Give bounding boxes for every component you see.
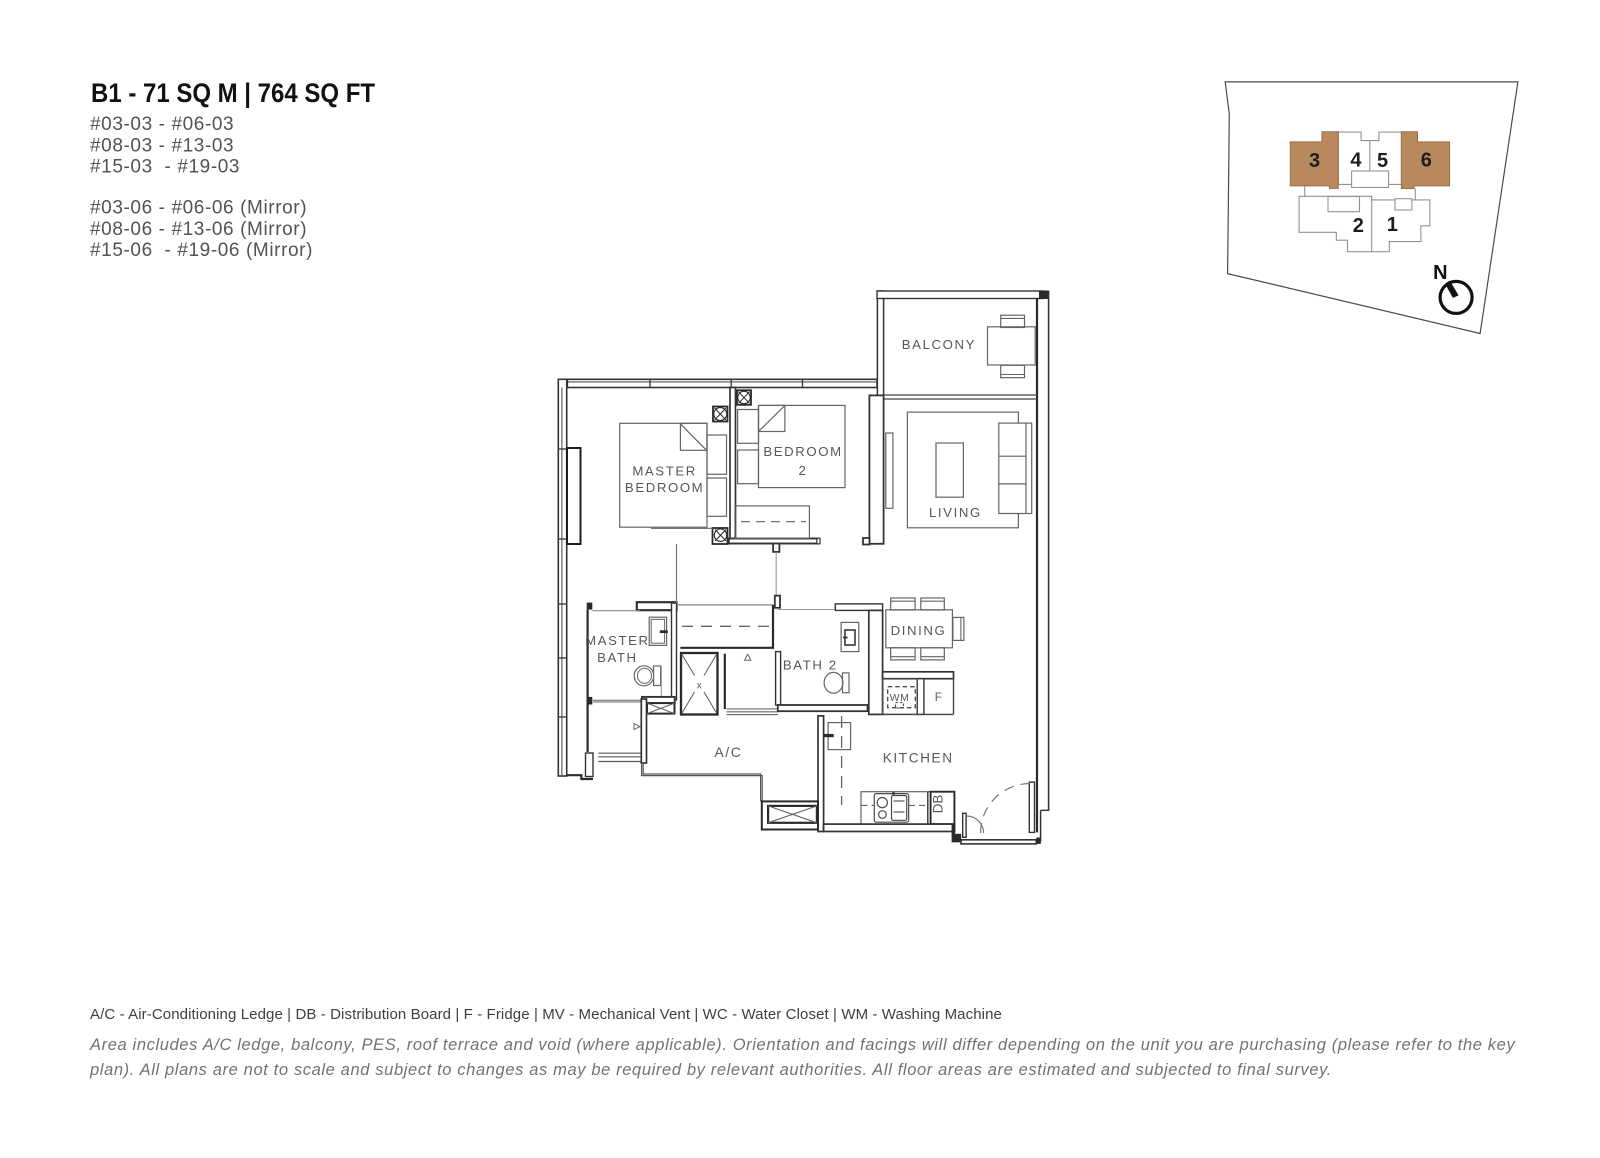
- svg-text:6: 6: [1421, 150, 1432, 172]
- svg-text:Area includes A/C ledge, balco: Area includes A/C ledge, balcony, PES, r…: [89, 1036, 1516, 1054]
- svg-text:BEDROOM: BEDROOM: [763, 444, 842, 459]
- svg-text:#08-06 - #13-06 (Mirror): #08-06 - #13-06 (Mirror): [90, 219, 307, 240]
- svg-text:WM: WM: [890, 692, 910, 704]
- svg-text:BATH: BATH: [597, 650, 638, 665]
- svg-text:BEDROOM: BEDROOM: [625, 480, 704, 495]
- svg-text:MASTER: MASTER: [585, 633, 650, 648]
- svg-text:1: 1: [1387, 214, 1398, 236]
- svg-text:plan). All plans are not to sc: plan). All plans are not to scale and su…: [89, 1061, 1332, 1079]
- svg-text:#03-03 - #06-03: #03-03 - #06-03: [90, 114, 234, 135]
- svg-text:DB: DB: [931, 795, 946, 814]
- svg-text:4: 4: [1350, 150, 1362, 172]
- svg-text:BATH 2: BATH 2: [783, 658, 838, 673]
- svg-text:#08-03 - #13-03: #08-03 - #13-03: [90, 135, 234, 156]
- svg-text:B1 - 71 SQ M | 764 SQ FT: B1 - 71 SQ M | 764 SQ FT: [91, 78, 375, 108]
- svg-text:3: 3: [1309, 150, 1320, 172]
- svg-text:#15-03 - #19-03: #15-03 - #19-03: [90, 157, 240, 178]
- svg-text:DINING: DINING: [891, 623, 947, 638]
- svg-text:2: 2: [1353, 215, 1364, 237]
- svg-text:KITCHEN: KITCHEN: [883, 750, 954, 765]
- svg-text:BALCONY: BALCONY: [902, 337, 976, 352]
- svg-text:5: 5: [1377, 150, 1388, 172]
- svg-text:F: F: [935, 692, 942, 704]
- svg-text:MASTER: MASTER: [632, 463, 697, 478]
- svg-text:N: N: [1433, 262, 1447, 284]
- svg-text:#15-06 - #19-06 (Mirror): #15-06 - #19-06 (Mirror): [90, 240, 313, 261]
- svg-text:LIVING: LIVING: [929, 505, 982, 520]
- svg-text:A/C: A/C: [714, 744, 742, 760]
- svg-text:2: 2: [799, 463, 808, 478]
- svg-text:#03-06 - #06-06 (Mirror): #03-06 - #06-06 (Mirror): [90, 198, 307, 219]
- svg-text:x: x: [697, 681, 702, 692]
- svg-text:A/C - Air-Conditioning Ledge |: A/C - Air-Conditioning Ledge | DB - Dist…: [90, 1006, 1002, 1023]
